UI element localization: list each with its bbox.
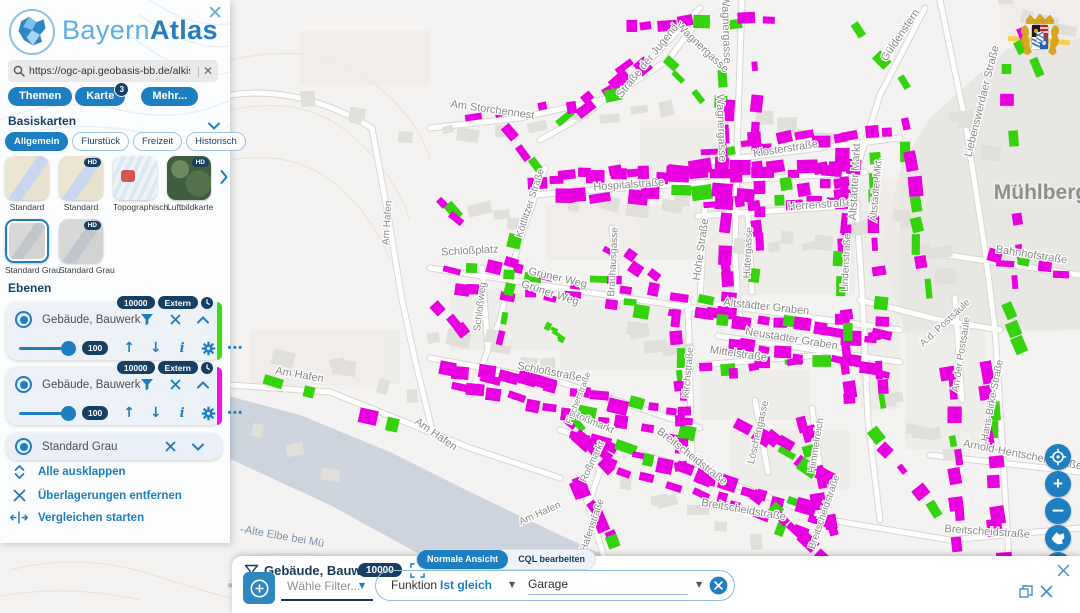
action-remove[interactable]: Überlagerungen entfernen xyxy=(9,489,182,502)
bavaria-logo-icon xyxy=(14,14,50,50)
main-menu: ThemenKarte3Mehr... xyxy=(8,87,201,106)
layer-more-icon[interactable]: ••• xyxy=(228,407,244,419)
view-toggle-segment[interactable]: Normale Ansicht xyxy=(417,550,508,569)
opacity-value: 100 xyxy=(82,341,108,355)
filter-operator-select[interactable]: Ist gleich xyxy=(440,578,492,592)
search-bar: | ✕ xyxy=(8,60,218,82)
basemap-tabs: AllgemeinFlurstückFreizeitHistorisch xyxy=(5,132,246,151)
layer-color-stripe xyxy=(217,302,222,360)
action-label: Alle ausklappen xyxy=(38,466,126,478)
expand-icon xyxy=(9,464,29,480)
layer-card: Standard Grau xyxy=(6,433,222,460)
add-filter-button[interactable] xyxy=(243,572,275,604)
basemap-thumbnail[interactable] xyxy=(5,219,49,263)
layers-header: Ebenen xyxy=(8,281,51,295)
visibility-eye-icon[interactable] xyxy=(15,438,32,455)
layer-settings-icon[interactable] xyxy=(201,341,216,356)
basemap-label: Standard xyxy=(59,202,103,212)
layer-info-icon[interactable]: i xyxy=(180,406,185,421)
visibility-eye-icon[interactable] xyxy=(15,311,32,328)
move-layer-down-icon[interactable]: ↓ xyxy=(150,340,162,356)
basemap-thumbnail[interactable]: HD xyxy=(59,219,103,263)
layer-more-icon[interactable]: ••• xyxy=(228,342,244,354)
zoom-in-button[interactable]: + xyxy=(1045,471,1071,497)
layer-card-controls: 100↑↓i••• xyxy=(6,328,222,356)
filter-widget-close-icon[interactable] xyxy=(1040,585,1053,598)
layer-filter-icon[interactable] xyxy=(140,313,154,326)
hd-badge: HD xyxy=(192,158,209,167)
basemap-thumbnail[interactable] xyxy=(5,156,49,200)
opacity-slider[interactable] xyxy=(19,412,69,415)
layer-card-controls: 100↑↓i••• xyxy=(6,393,222,421)
layer-title: Standard Grau xyxy=(42,441,117,453)
value-caret-icon[interactable]: ▼ xyxy=(696,580,702,589)
sidebar-panel: ✕ BayernAtlas | ✕ ThemenKarte3Mehr... Ba… xyxy=(0,0,230,543)
visibility-eye-icon[interactable] xyxy=(15,376,32,393)
layer-expand-icon[interactable] xyxy=(192,443,204,451)
filter-panel: Gebäude, Bauwerk 10000 Normale AnsichtCQ… xyxy=(232,556,1080,613)
menu-button-1[interactable]: Themen xyxy=(8,87,72,106)
view-toggle-segment[interactable]: CQL bearbeiten xyxy=(508,550,595,569)
layer-color-stripe xyxy=(217,367,222,425)
move-layer-down-icon[interactable]: ↓ xyxy=(150,405,162,421)
filter-expression-group: Funktion Ist gleich ▼ ▼ xyxy=(375,570,735,601)
search-icon xyxy=(13,65,25,77)
choose-filter-underline xyxy=(281,599,373,601)
plus-circle-icon xyxy=(250,579,269,598)
layer-collapse-icon[interactable] xyxy=(197,381,209,389)
filter-panel-close-icon[interactable] xyxy=(1057,564,1070,582)
bayernatlas-app: WagnergasseWagnergasseWagnergasseStraße … xyxy=(0,0,1080,613)
basemap-label: Topographisch xyxy=(113,202,157,212)
basemaps-header: Basiskarten xyxy=(8,114,76,128)
basemap-label: Luftbildkarte xyxy=(167,202,211,212)
layer-remove-icon[interactable] xyxy=(170,379,181,390)
layer-title: Gebäude, Bauwerk xyxy=(42,314,140,326)
basemap-item[interactable]: HDStandard Grau xyxy=(59,219,103,275)
basemap-label: Standard Grau xyxy=(5,265,49,275)
basemap-thumbnail[interactable] xyxy=(113,156,157,200)
geolocate-icon xyxy=(1049,448,1067,466)
basemap-item[interactable]: Standard Grau xyxy=(5,219,49,275)
view-mode-toggle: Normale AnsichtCQL bearbeiten xyxy=(416,549,596,570)
detach-window-icon[interactable] xyxy=(1019,585,1033,598)
layer-badge: 10000 xyxy=(117,296,155,309)
layer-actions: Alle ausklappenÜberlagerungen entfernenV… xyxy=(9,464,182,533)
remove-icon xyxy=(9,489,29,502)
opacity-slider-knob[interactable] xyxy=(61,406,76,421)
operator-caret-icon[interactable]: ▼ xyxy=(509,580,515,589)
bavaria-coat-of-arms xyxy=(1021,14,1059,55)
layer-settings-icon[interactable] xyxy=(201,406,216,421)
search-input[interactable] xyxy=(25,65,194,77)
basemap-tab[interactable]: Historisch xyxy=(186,132,246,151)
action-label: Vergleichen starten xyxy=(38,512,144,524)
search-clear-icon[interactable]: ✕ xyxy=(203,64,213,78)
layer-title: Gebäude, Bauwerk xyxy=(42,379,140,391)
layer-card-header: Standard Grau xyxy=(6,433,222,455)
menu-count-badge: 3 xyxy=(114,82,129,97)
basemap-thumbnails: StandardHDStandardTopographischHDLuftbil… xyxy=(5,156,217,282)
street-label: Wagnergasse xyxy=(714,94,728,162)
basemap-tab[interactable]: Flurstück xyxy=(72,132,129,151)
bavaria-extent-icon xyxy=(1050,530,1066,546)
menu-button-3[interactable]: Mehr... xyxy=(141,87,198,106)
clock-icon xyxy=(201,362,213,374)
filter-attribute-label: Funktion xyxy=(391,578,437,592)
geolocate-button[interactable] xyxy=(1045,444,1071,470)
basemap-item[interactable]: HDLuftbildkarte xyxy=(167,156,211,212)
layer-badges: 10000Extern xyxy=(117,361,213,374)
basemap-item[interactable]: Topographisch xyxy=(113,156,157,212)
search-separator: | xyxy=(197,64,200,78)
hd-badge: HD xyxy=(84,158,101,167)
layer-card: 10000ExternGebäude, Bauwerk100↑↓i••• xyxy=(6,302,222,360)
basemap-label: Standard Grau xyxy=(59,265,103,275)
filter-value-input[interactable] xyxy=(528,574,688,595)
thumbnails-scroll-right-icon[interactable] xyxy=(220,170,228,189)
layer-filter-icon[interactable] xyxy=(140,378,154,391)
basemap-item[interactable]: Standard xyxy=(5,156,49,212)
compare-icon xyxy=(9,511,29,524)
layer-card: 10000ExternGebäude, Bauwerk100↑↓i••• xyxy=(6,367,222,425)
layer-collapse-icon[interactable] xyxy=(197,316,209,324)
layer-remove-icon[interactable] xyxy=(165,441,176,452)
basemap-thumbnail[interactable]: HD xyxy=(59,156,103,200)
layer-badges: 10000Extern xyxy=(117,296,213,309)
app-title: BayernAtlas xyxy=(62,15,218,46)
clear-value-icon[interactable] xyxy=(709,576,728,595)
basemap-label: Standard xyxy=(5,202,49,212)
basemap-item[interactable]: HDStandard xyxy=(59,156,103,212)
move-layer-up-icon[interactable]: ↑ xyxy=(123,340,135,356)
clock-icon xyxy=(201,297,213,309)
opacity-slider-knob[interactable] xyxy=(61,341,76,356)
layer-remove-icon[interactable] xyxy=(170,314,181,325)
menu-button-2[interactable]: Karte3 xyxy=(75,87,125,106)
default-extent-button[interactable] xyxy=(1045,525,1071,551)
choose-filter-caret-icon[interactable]: ▼ xyxy=(359,581,365,590)
opacity-value: 100 xyxy=(82,406,108,420)
layer-badge: 10000 xyxy=(117,361,155,374)
basemap-tab[interactable]: Freizeit xyxy=(133,132,182,151)
action-expand[interactable]: Alle ausklappen xyxy=(9,464,182,480)
region-label: Mühlberg xyxy=(994,181,1080,204)
layer-badge: Extern xyxy=(158,296,198,309)
opacity-slider[interactable] xyxy=(19,347,69,350)
street-label: Wagnergasse xyxy=(719,0,733,64)
basemap-thumbnail[interactable]: HD xyxy=(167,156,211,200)
action-label: Überlagerungen entfernen xyxy=(38,490,182,502)
bayernatlas-logo xyxy=(9,9,55,55)
layer-info-icon[interactable]: i xyxy=(180,341,185,356)
action-compare[interactable]: Vergleichen starten xyxy=(9,511,182,524)
basemap-tab[interactable]: Allgemein xyxy=(5,132,68,151)
choose-filter-dropdown[interactable]: Wähle Filter... xyxy=(287,579,360,593)
zoom-out-button[interactable]: − xyxy=(1045,498,1071,524)
hd-badge: HD xyxy=(84,221,101,230)
layer-badge: Extern xyxy=(158,361,198,374)
move-layer-up-icon[interactable]: ↑ xyxy=(123,405,135,421)
